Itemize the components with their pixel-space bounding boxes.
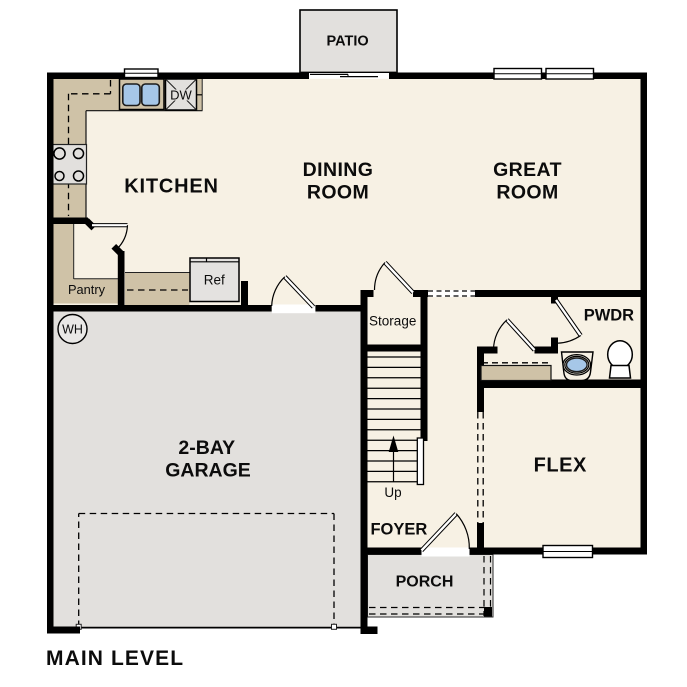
svg-text:FOYER: FOYER <box>370 521 427 539</box>
svg-text:WH: WH <box>62 323 83 337</box>
svg-text:GREAT: GREAT <box>493 159 562 181</box>
svg-text:PORCH: PORCH <box>396 573 454 590</box>
svg-text:ROOM: ROOM <box>307 181 369 203</box>
svg-text:Pantry: Pantry <box>68 282 106 297</box>
svg-text:ROOM: ROOM <box>496 181 558 203</box>
svg-text:DW: DW <box>170 87 192 102</box>
svg-text:FLEX: FLEX <box>534 455 587 477</box>
svg-text:PWDR: PWDR <box>584 306 634 324</box>
svg-text:Up: Up <box>384 485 401 500</box>
svg-text:Storage: Storage <box>369 314 416 329</box>
svg-text:MAIN LEVEL: MAIN LEVEL <box>46 647 184 670</box>
svg-text:Ref: Ref <box>204 273 225 288</box>
svg-text:GARAGE: GARAGE <box>165 460 251 482</box>
svg-text:DINING: DINING <box>303 159 374 181</box>
svg-text:2-BAY: 2-BAY <box>178 437 235 459</box>
svg-text:KITCHEN: KITCHEN <box>124 176 219 198</box>
svg-text:PATIO: PATIO <box>327 33 369 49</box>
